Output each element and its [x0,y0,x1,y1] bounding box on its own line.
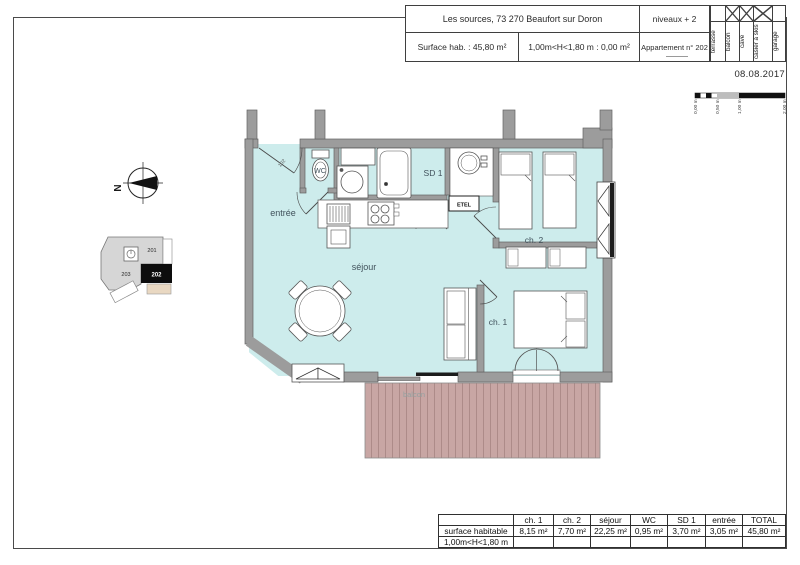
level-text: niveaux + 2 [653,15,697,24]
floor-plan: balcon [240,110,615,458]
room-label-ch1: ch. 1 [489,317,508,327]
room-label-wc: WC [314,168,326,175]
amenity-label-casier: casier à skis [754,22,761,61]
sofa [444,288,476,360]
balcony-label: balcon [403,390,425,399]
amenity-col-balcon: balcon [725,6,739,61]
north-label: N [113,184,124,191]
amenity-grid: terrasse balcon cave [710,5,786,62]
row-label: surface habitable [439,526,514,537]
title-apartment: Appartement n° 202 [639,32,710,62]
scale-tick-2: 1,00 m [737,99,743,114]
bathtub [377,148,411,198]
amenity-check-cave [740,6,753,22]
floor-plan-sheet: balcon [0,0,800,565]
title-address: Les sources, 73 270 Beaufort sur Doron [405,5,640,33]
apartment-subnote-line [666,56,688,57]
north-compass: N [113,162,163,204]
cross-icon [740,6,753,21]
col-header: ch. 1 [514,515,554,526]
toilet [312,150,329,181]
col-header: séjour [591,515,631,526]
amenity-col-terrasse: terrasse [711,6,725,61]
amenity-col-cave: cave [739,6,753,61]
bed-double [514,291,587,348]
wardrobes [506,247,586,268]
apartment-text: Appartement n° 202 [641,43,708,52]
room-label-sejour: séjour [352,262,377,272]
area-cell: 3,05 m² [706,526,743,537]
scale-tick-1: 0,50 m [715,99,721,114]
amenity-label-cave: cave [740,22,747,61]
area-cell: 45,80 m² [743,526,786,537]
room-label-entree: entrée [270,208,296,218]
sheet-drawing: balcon [0,0,800,565]
address-text: Les sources, 73 270 Beaufort sur Doron [443,15,603,24]
amenity-check-casier [754,6,772,22]
title-level: niveaux + 2 [639,5,710,33]
area-cell: 0,95 m² [631,526,668,537]
bed-single-1 [499,152,532,229]
surface-text: Surface hab. : 45,80 m² [418,43,507,52]
amenity-check-balcon [726,6,739,22]
col-header: WC [631,515,668,526]
key-unit-202: 202 [151,273,162,279]
etel-label: ETEL [457,203,472,209]
area-cell: 7,70 m² [554,526,591,537]
cross-icon [754,6,772,21]
window-ch2 [597,182,615,258]
kitchen-cabinet [327,204,350,248]
col-header: ch. 2 [554,515,591,526]
drawing-date: 08.08.2017 [688,69,785,80]
col-header: SD 1 [668,515,706,526]
area-cell [706,537,743,548]
area-cell: 22,25 m² [591,526,631,537]
area-cell [591,537,631,548]
height-clause-text: 1,00m<H<1,80 m : 0,00 m² [528,43,630,52]
amenity-label-garage: garage [773,22,780,61]
scale-bar: 0,00 m 0,50 m 1,00 m 2,00 m [693,93,788,114]
dining-table [288,280,352,342]
amenity-col-casier: casier à skis [753,6,772,61]
row-label: 1,00m<H<1,80 m [439,537,514,548]
col-header: TOTAL [743,515,786,526]
amenity-label-balcon: balcon [726,22,733,61]
key-unit-203: 203 [121,272,130,278]
key-unit-201: 201 [147,248,156,254]
table-row: surface habitable 8,15 m² 7,70 m² 22,25 … [439,526,786,537]
area-cell: 8,15 m² [514,526,554,537]
amenity-check-garage [773,6,785,22]
amenity-check-terrasse [711,6,725,22]
title-surface: Surface hab. : 45,80 m² [405,32,519,62]
room-label-sd1: SD 1 [424,168,443,178]
room-label-ch2: ch. 2 [525,235,544,245]
area-cell [554,537,591,548]
title-height-clause: 1,00m<H<1,80 m : 0,00 m² [518,32,640,62]
table-header-row: ch. 1 ch. 2 séjour WC SD 1 entrée TOTAL [439,515,786,526]
col-header [439,515,514,526]
area-cell: 3,70 m² [668,526,706,537]
area-cell [668,537,706,548]
washbasin [450,148,493,196]
col-header: entrée [706,515,743,526]
cross-icon [726,6,739,21]
scale-tick-3: 2,00 m [782,99,788,114]
scale-tick-0: 0,00 m [693,99,699,114]
area-cell [743,537,786,548]
balcony: balcon [365,383,600,458]
amenity-label-terrasse: terrasse [711,22,718,61]
bed-single-2 [543,152,576,228]
area-cell [631,537,668,548]
area-table: ch. 1 ch. 2 séjour WC SD 1 entrée TOTAL … [438,514,786,548]
amenity-col-garage: garage [772,6,785,61]
table-row: 1,00m<H<1,80 m [439,537,786,548]
area-cell [514,537,554,548]
key-plan: 201 203 202 [101,237,172,303]
window-sejour [292,364,344,382]
